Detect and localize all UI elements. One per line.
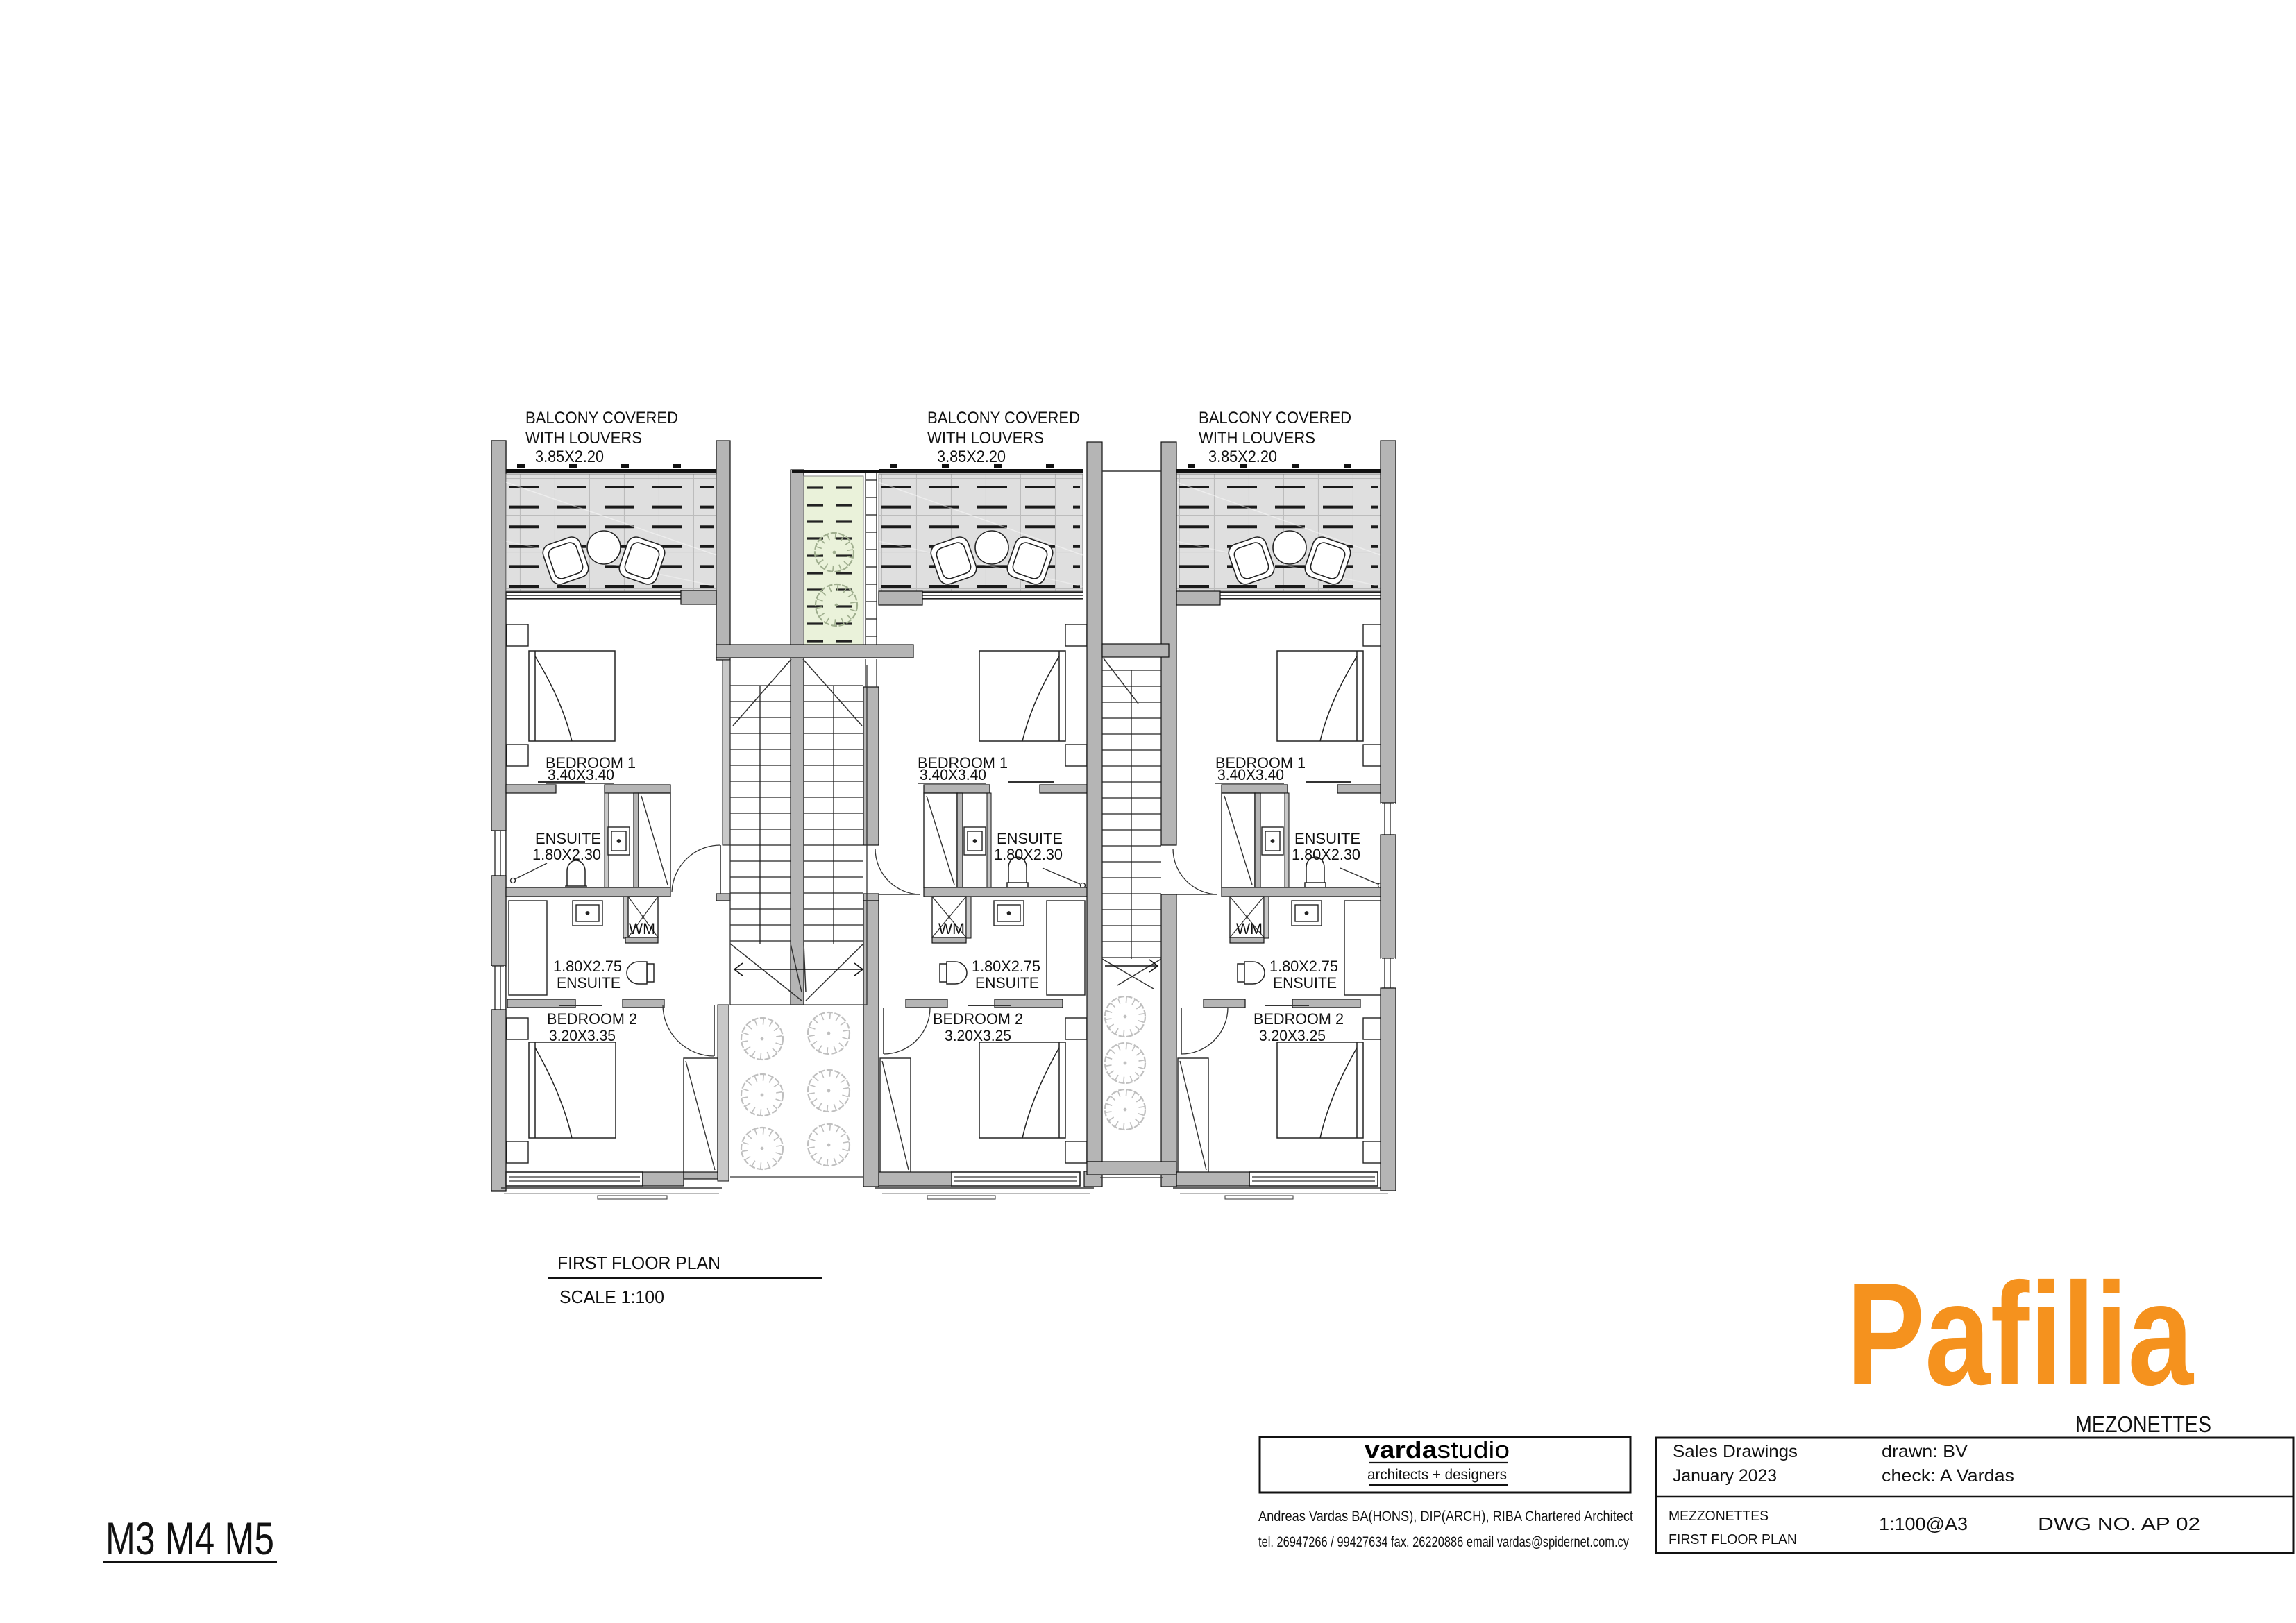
svg-text:WITH LOUVERS: WITH LOUVERS (525, 429, 642, 448)
svg-text:architects + designers: architects + designers (1367, 1467, 1507, 1483)
svg-text:ENSUITE: ENSUITE (975, 974, 1039, 992)
svg-text:ENSUITE: ENSUITE (557, 974, 621, 992)
svg-text:MEZONETTES: MEZONETTES (2075, 1411, 2211, 1437)
svg-text:vardastudio: vardastudio (1365, 1437, 1510, 1463)
svg-text:1.80X2.30: 1.80X2.30 (994, 846, 1063, 863)
svg-text:1.80X2.75: 1.80X2.75 (553, 958, 622, 975)
svg-text:BEDROOM 2: BEDROOM 2 (1253, 1010, 1344, 1028)
svg-text:Sales Drawings: Sales Drawings (1673, 1442, 1798, 1461)
svg-text:1.80X2.75: 1.80X2.75 (972, 958, 1040, 975)
svg-text:3.40X3.40: 3.40X3.40 (548, 766, 614, 783)
svg-text:3.40X3.40: 3.40X3.40 (1217, 766, 1284, 783)
svg-text:3.85X2.20: 3.85X2.20 (937, 448, 1006, 466)
svg-text:WM: WM (629, 920, 655, 937)
svg-text:Andreas Vardas BA(HONS), DIP(A: Andreas Vardas BA(HONS), DIP(ARCH), RIBA… (1258, 1508, 1633, 1524)
svg-text:BALCONY COVERED: BALCONY COVERED (525, 409, 678, 427)
svg-text:ENSUITE: ENSUITE (1294, 830, 1360, 847)
svg-text:BALCONY COVERED: BALCONY COVERED (927, 409, 1080, 427)
svg-text:1.80X2.75: 1.80X2.75 (1269, 958, 1338, 975)
svg-text:1:100@A3: 1:100@A3 (1879, 1513, 1968, 1534)
svg-text:WITH LOUVERS: WITH LOUVERS (927, 429, 1044, 448)
svg-text:1.80X2.30: 1.80X2.30 (1292, 846, 1360, 863)
svg-text:drawn: BV: drawn: BV (1882, 1442, 1968, 1461)
svg-text:MEZZONETTES: MEZZONETTES (1669, 1509, 1769, 1524)
svg-text:3.20X3.35: 3.20X3.35 (549, 1027, 616, 1044)
svg-text:FIRST FLOOR PLAN: FIRST FLOOR PLAN (1669, 1532, 1797, 1547)
svg-text:1.80X2.30: 1.80X2.30 (532, 846, 601, 863)
svg-text:3.20X3.25: 3.20X3.25 (945, 1027, 1011, 1044)
svg-text:ENSUITE: ENSUITE (535, 830, 601, 847)
svg-text:3.40X3.40: 3.40X3.40 (920, 766, 986, 783)
svg-text:FIRST FLOOR PLAN: FIRST FLOOR PLAN (557, 1252, 720, 1273)
svg-text:M3 M4 M5: M3 M4 M5 (105, 1513, 274, 1564)
svg-text:Pafilia: Pafilia (1846, 1252, 2195, 1416)
svg-text:BALCONY COVERED: BALCONY COVERED (1199, 409, 1351, 427)
svg-text:WM: WM (1236, 920, 1263, 937)
svg-text:3.20X3.25: 3.20X3.25 (1259, 1027, 1326, 1044)
svg-text:WM: WM (938, 920, 965, 937)
svg-text:ENSUITE: ENSUITE (1273, 974, 1337, 992)
svg-text:January 2023: January 2023 (1673, 1466, 1777, 1486)
svg-text:3.85X2.20: 3.85X2.20 (535, 448, 604, 466)
svg-text:SCALE 1:100: SCALE 1:100 (559, 1286, 664, 1307)
svg-text:BEDROOM 2: BEDROOM 2 (547, 1010, 637, 1028)
svg-text:DWG NO. AP 02: DWG NO. AP 02 (2038, 1513, 2200, 1534)
svg-text:ENSUITE: ENSUITE (997, 830, 1063, 847)
svg-text:3.85X2.20: 3.85X2.20 (1208, 448, 1277, 466)
svg-text:check: A Vardas: check: A Vardas (1882, 1466, 2014, 1486)
svg-text:BEDROOM 2: BEDROOM 2 (933, 1010, 1023, 1028)
svg-text:WITH LOUVERS: WITH LOUVERS (1199, 429, 1315, 448)
svg-text:tel. 26947266 / 99427634 fax.: tel. 26947266 / 99427634 fax. 26220886 e… (1258, 1534, 1629, 1550)
